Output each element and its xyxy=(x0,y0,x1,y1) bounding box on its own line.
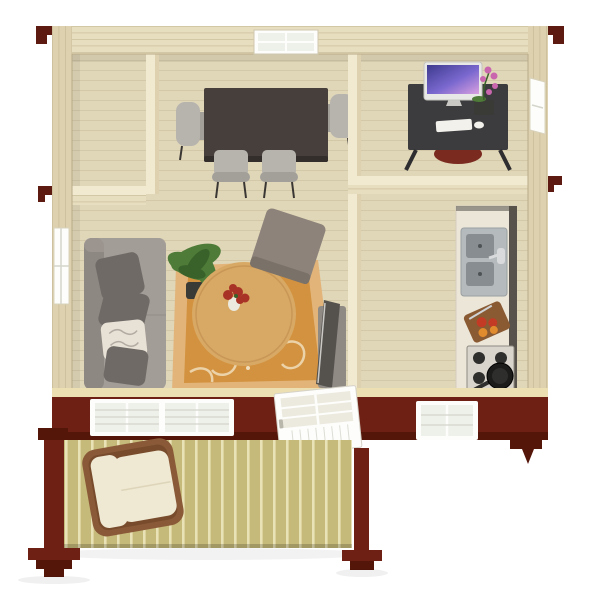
exterior-wall-left xyxy=(52,26,72,390)
wall-living-kitchen xyxy=(348,194,361,390)
front-window-sash-left xyxy=(95,403,159,432)
wall-office-kitchen xyxy=(348,176,528,194)
office-side-window xyxy=(530,78,545,134)
front-double-window xyxy=(90,399,234,436)
eave-bracket-right-mid xyxy=(546,176,562,192)
front-porch xyxy=(18,428,388,584)
floorplan-render xyxy=(0,0,600,600)
sofa-pillow-dark-3 xyxy=(103,345,150,386)
coffee-table xyxy=(192,262,296,366)
eave-bracket-left-mid xyxy=(38,186,52,202)
floorplan-svg xyxy=(0,0,600,600)
sofa xyxy=(84,238,166,390)
tv xyxy=(316,300,346,388)
kitchen-sink xyxy=(461,228,507,296)
front-wall-right-bracket xyxy=(510,440,542,464)
living-side-window xyxy=(54,228,69,304)
kitchen xyxy=(456,206,517,392)
dining-window xyxy=(254,30,318,54)
wall-entry-living xyxy=(68,186,146,205)
wall-dining-office xyxy=(348,44,361,178)
front-window-sash-right xyxy=(165,403,229,432)
front-right-window xyxy=(416,401,478,440)
gas-stove xyxy=(467,346,514,392)
mouse xyxy=(474,122,484,129)
deck-chair xyxy=(80,436,186,539)
wall-entry-dining xyxy=(146,44,159,194)
